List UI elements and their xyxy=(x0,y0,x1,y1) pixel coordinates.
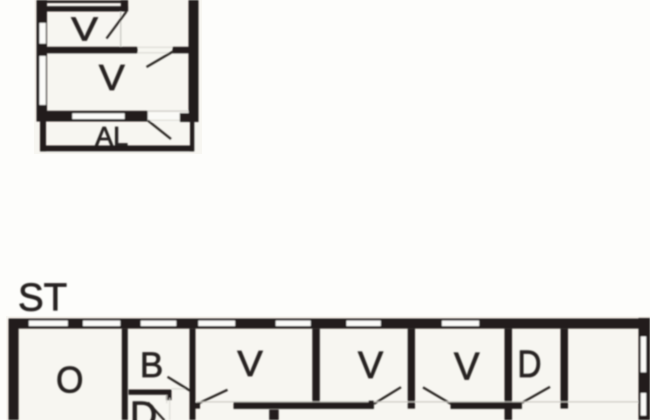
svg-text:D: D xyxy=(130,395,157,420)
svg-text:V: V xyxy=(454,346,480,389)
svg-text:V: V xyxy=(237,343,263,384)
svg-text:B: B xyxy=(140,346,163,385)
svg-text:V: V xyxy=(358,345,384,387)
svg-text:O: O xyxy=(56,358,83,400)
svg-text:V: V xyxy=(99,58,125,98)
svg-text:D: D xyxy=(517,343,541,385)
svg-text:AL: AL xyxy=(95,122,128,152)
svg-text:V: V xyxy=(71,11,98,48)
svg-text:ST: ST xyxy=(18,277,67,320)
